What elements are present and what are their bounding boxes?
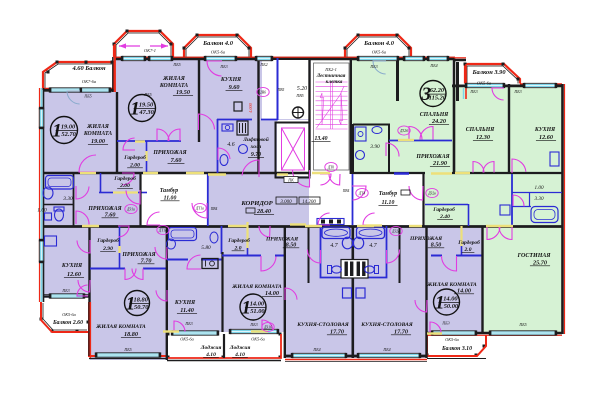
svg-text:18.80: 18.80 [134,297,149,304]
svg-text:3.000: 3.000 [280,200,292,205]
svg-text:ДТ4: ДТ4 [358,191,365,195]
svg-text:ПБ3: ПБ3 [249,322,257,327]
svg-text:14.00: 14.00 [265,290,279,297]
svg-text:Гардероб: Гардероб [123,154,146,161]
svg-text:ПБ2-1: ПБ2-1 [324,67,337,72]
svg-text:7.60: 7.60 [171,157,182,164]
svg-text:Д32в: Д32в [427,191,436,195]
svg-text:19.00: 19.00 [61,124,76,131]
svg-text:14.00: 14.00 [457,288,471,295]
svg-text:4.7: 4.7 [330,242,338,249]
svg-text:ПБ5: ПБ5 [123,347,131,352]
svg-text:ОК5-6а: ОК5-6а [251,337,264,342]
svg-text:КОРИДОР: КОРИДОР [240,200,273,207]
svg-text:Балкон 2.60: Балкон 2.60 [52,320,83,326]
svg-text:КУХНЯ-СТОЛОВАЯ: КУХНЯ-СТОЛОВАЯ [296,322,349,328]
svg-text:21.90: 21.90 [432,160,447,167]
svg-text:Лоджия: Лоджия [229,344,251,351]
svg-text:3.30: 3.30 [534,196,543,202]
svg-text:ПБ3: ПБ3 [469,89,477,94]
svg-text:11.40: 11.40 [180,307,194,314]
svg-text:Тамбур: Тамбур [160,187,179,194]
svg-text:19.50: 19.50 [176,89,190,96]
svg-text:2В6: 2В6 [260,90,266,94]
svg-text:ПБ5: ПБ5 [172,62,180,67]
svg-text:СПАЛЬНЯ: СПАЛЬНЯ [466,127,495,133]
svg-text:Гардероб: Гардероб [227,237,250,244]
svg-text:28.40: 28.40 [256,208,271,215]
svg-text:19.00: 19.00 [91,138,105,145]
svg-text:ПБ3: ПБ3 [369,64,377,69]
svg-text:4.60 Балкон: 4.60 Балкон [71,65,106,72]
svg-text:Гардероб: Гардероб [113,175,136,182]
svg-text:ПБ4: ПБ4 [382,347,390,352]
svg-text:17.70: 17.70 [330,329,344,336]
svg-text:12.60: 12.60 [67,271,81,278]
svg-text:ДТ0: ДТ0 [327,165,334,169]
svg-text:50.00: 50.00 [444,303,459,310]
svg-text:ОК5-6а: ОК5-6а [445,337,458,342]
svg-text:ПВ5: ПВ5 [295,93,303,98]
svg-text:7.70: 7.70 [141,258,152,265]
svg-text:клетка: клетка [326,79,343,85]
svg-text:4.000: 4.000 [248,102,253,112]
svg-text:Гардероб: Гардероб [96,237,119,244]
svg-text:ПБ5: ПБ5 [83,94,91,99]
svg-text:КУХНЯ: КУХНЯ [174,300,196,306]
svg-text:ОК5-6а: ОК5-6а [372,50,387,55]
svg-text:ПВ5: ПВ5 [277,88,285,92]
svg-text:Балкон 3.90: Балкон 3.90 [471,69,506,76]
svg-text:Лифтовой: Лифтовой [242,136,268,143]
svg-text:Д32а: Д32а [391,229,400,233]
svg-text:ОК5-6а: ОК5-6а [180,337,193,342]
svg-text:4.7: 4.7 [369,242,377,249]
svg-text:Балкон 4.0: Балкон 4.0 [363,40,395,47]
svg-text:19.50: 19.50 [139,102,154,109]
svg-text:47.30: 47.30 [138,109,154,116]
svg-text:Д31б: Д31б [263,325,272,329]
svg-text:Д32б: Д32б [399,129,408,133]
svg-text:ЖИЛАЯ КОМНАТА: ЖИЛАЯ КОМНАТА [95,324,146,330]
svg-text:КУХНЯ: КУХНЯ [61,263,83,269]
svg-text:ПРИХОЖАЯ: ПРИХОЖАЯ [409,236,442,242]
svg-text:14.200: 14.200 [302,200,316,205]
svg-text:ПБ2: ПБ2 [259,62,267,67]
svg-text:50.70: 50.70 [134,304,149,311]
svg-text:51.00: 51.00 [250,308,265,315]
svg-text:18.80: 18.80 [124,331,138,338]
svg-text:1.00: 1.00 [534,185,543,191]
svg-text:3.90: 3.90 [369,144,380,150]
svg-text:ПВ4: ПВ4 [210,207,218,211]
svg-text:ДТ1а: ДТ1а [195,206,204,210]
svg-text:ПБ3: ПБ3 [513,89,521,94]
svg-text:ОК7-6а: ОК7-6а [82,79,97,84]
svg-text:ПК: ПК [287,178,294,183]
svg-text:ПБ5: ПБ5 [143,92,151,97]
svg-text:ПБ3: ПБ3 [184,321,192,326]
svg-text:ПБ5: ПБ5 [518,322,526,327]
svg-text:Тамбур: Тамбур [379,190,398,197]
svg-text:5.20: 5.20 [297,86,307,92]
svg-text:ОК5-6а: ОК5-6а [477,81,492,86]
svg-text:КОМНАТА: КОМНАТА [83,131,112,137]
svg-text:Балкон 4.0: Балкон 4.0 [202,40,234,47]
svg-text:12.30: 12.30 [476,134,490,141]
svg-text:ПВ4: ПВ4 [342,189,350,193]
svg-text:Гардероб: Гардероб [457,239,480,246]
svg-text:ОК5-6а: ОК5-6а [62,312,75,317]
svg-text:Гардероб: Гардероб [432,206,455,213]
svg-text:ОК5-6а: ОК5-6а [211,50,226,55]
svg-text:ПБ3: ПБ3 [61,288,69,293]
svg-text:ПБ4: ПБ4 [429,63,437,68]
svg-text:24.20: 24.20 [431,118,446,125]
svg-text:холл: холл [250,144,262,150]
svg-text:КУХНЯ: КУХНЯ [220,77,242,83]
svg-text:ГОСТИНАЯ: ГОСТИНАЯ [516,253,551,259]
svg-text:КУХНЯ: КУХНЯ [534,127,556,133]
svg-text:14.00: 14.00 [250,301,265,308]
svg-text:17.70: 17.70 [394,329,408,336]
svg-text:4.6: 4.6 [227,141,234,148]
svg-text:5.80: 5.80 [201,245,211,251]
svg-text:62.20: 62.20 [430,87,445,94]
svg-text:25.70: 25.70 [532,260,547,267]
svg-text:115.20: 115.20 [429,95,447,102]
svg-text:Лоджия: Лоджия [200,344,222,351]
svg-text:ОК7-1: ОК7-1 [144,48,156,53]
svg-text:КУХНЯ-СТОЛОВАЯ: КУХНЯ-СТОЛОВАЯ [360,322,413,328]
svg-text:Балкон 3.10: Балкон 3.10 [441,346,472,352]
svg-text:9.60: 9.60 [229,84,240,91]
svg-text:1.00: 1.00 [37,208,47,214]
svg-text:3.30: 3.30 [62,196,73,202]
svg-text:12.60: 12.60 [539,134,553,141]
svg-text:ЖИЛАЯ: ЖИЛАЯ [86,124,110,130]
svg-text:ЖИЛАЯ: ЖИЛАЯ [162,76,186,82]
svg-text:ПРИХОЖАЯ: ПРИХОЖАЯ [152,150,187,156]
svg-text:7.60: 7.60 [105,212,116,219]
svg-text:ПБ4: ПБ4 [312,347,320,352]
svg-text:ПБ3: ПБ3 [441,321,449,326]
svg-text:52.70: 52.70 [61,131,76,138]
svg-text:ПБ3: ПБ3 [219,64,227,69]
svg-text:Д31а: Д31а [126,207,135,211]
svg-text:ДТ1а: ДТ1а [158,228,167,232]
svg-text:14.00: 14.00 [443,296,458,303]
